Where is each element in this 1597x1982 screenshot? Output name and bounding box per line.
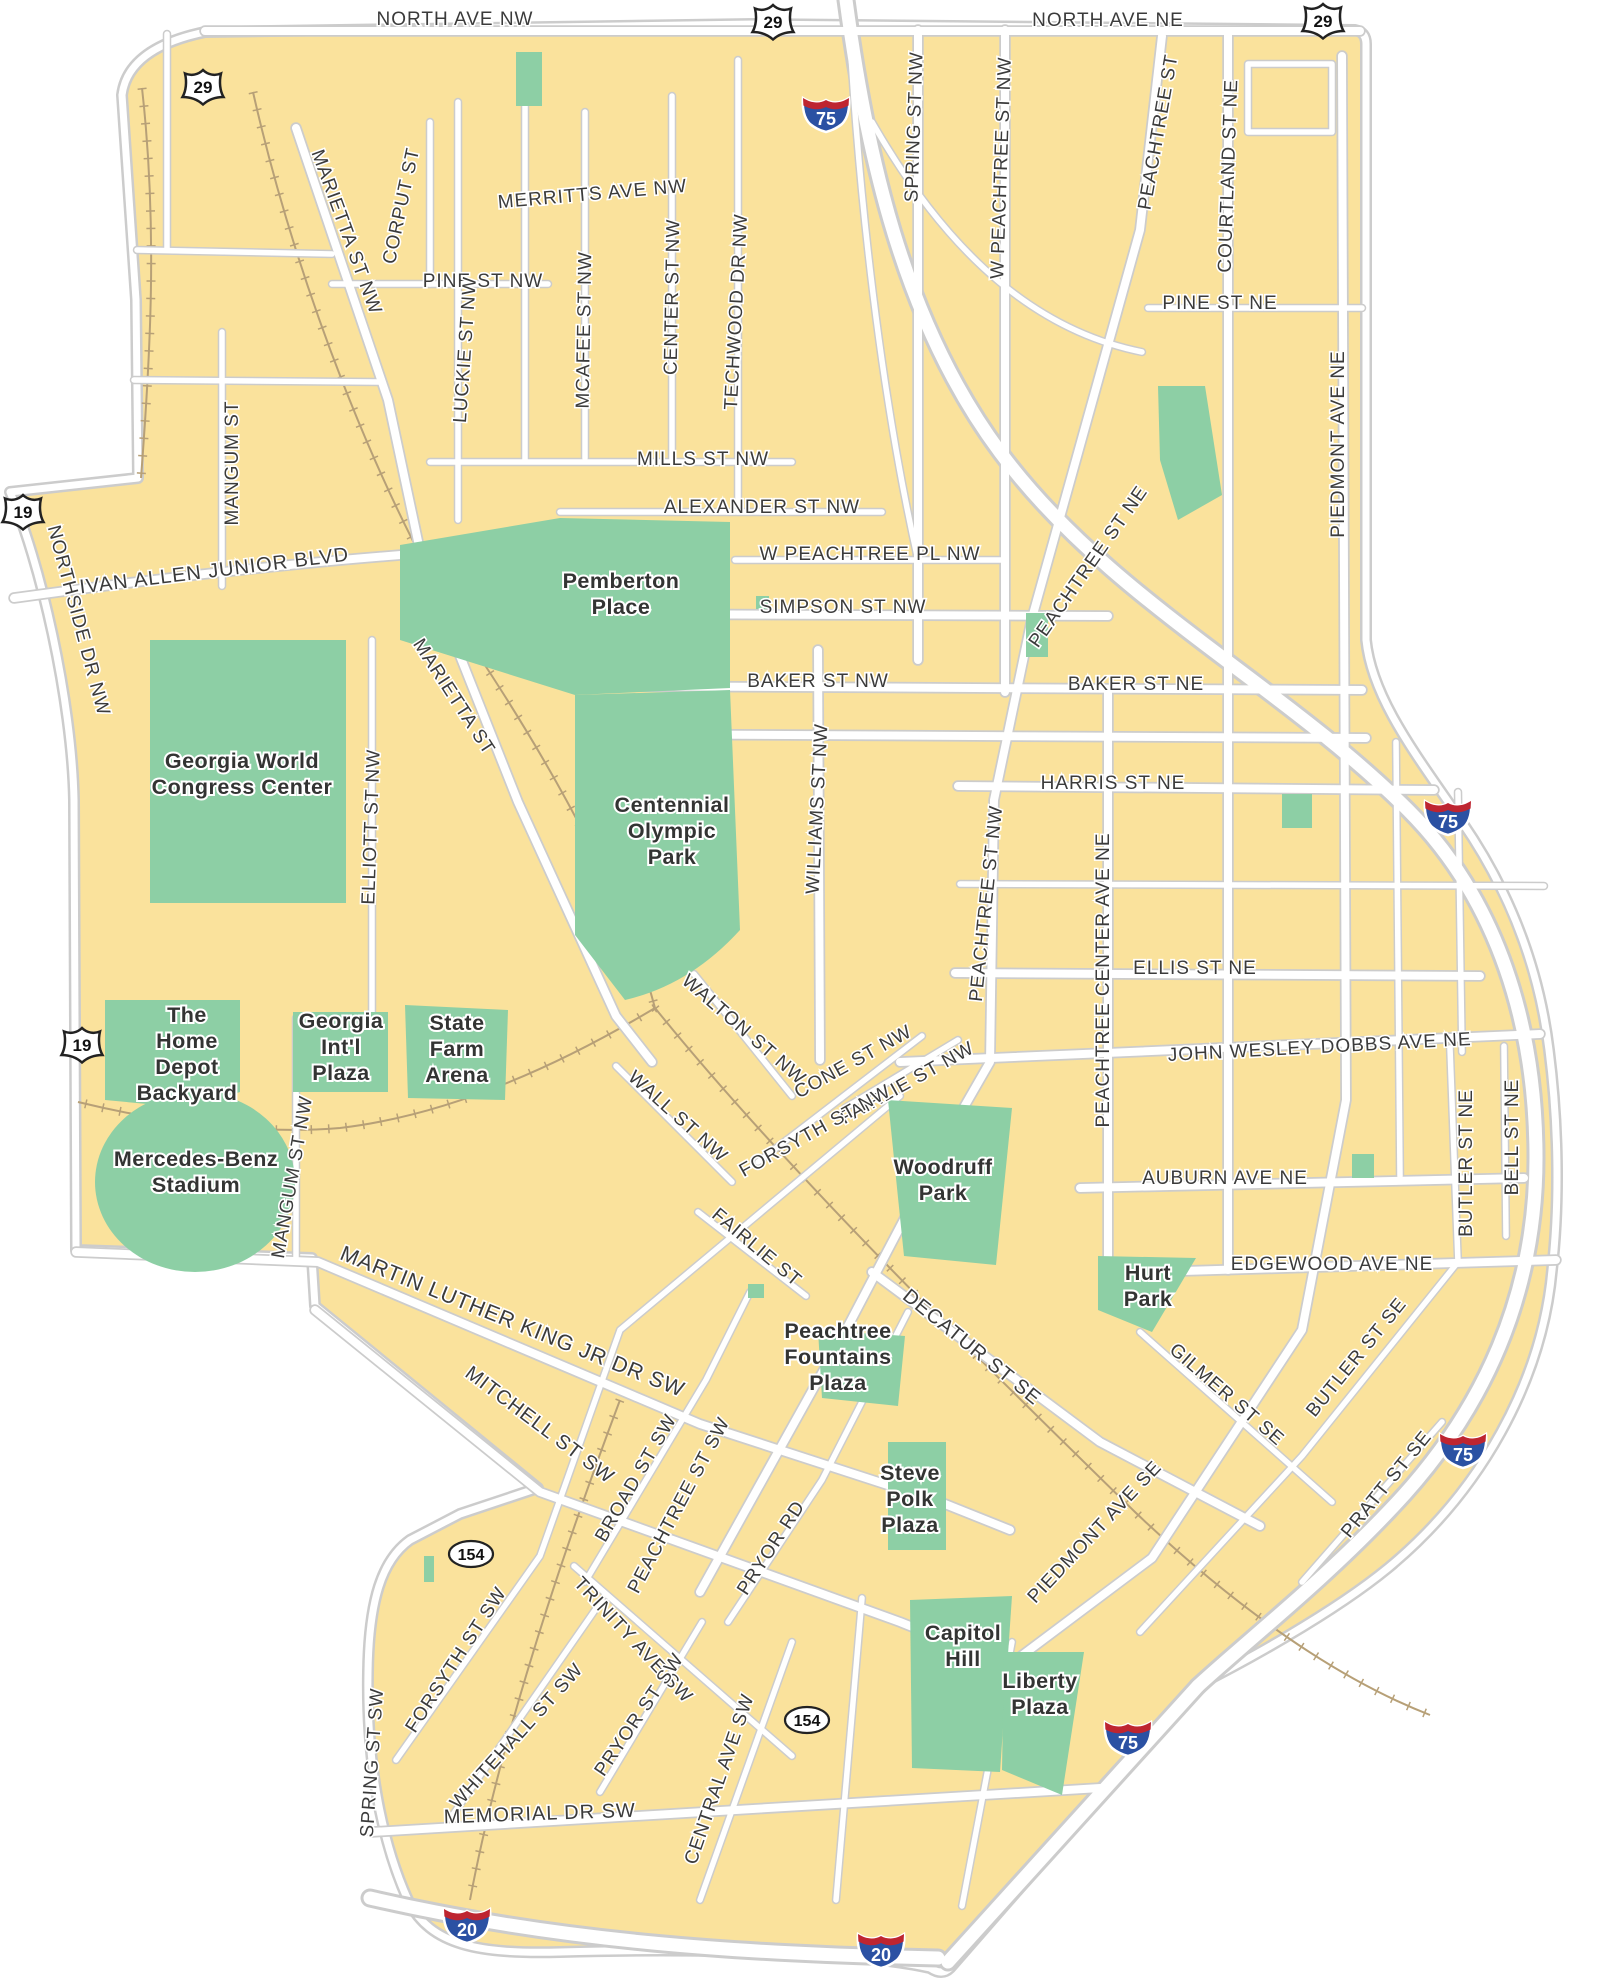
svg-text:19: 19 [14,503,33,522]
street-label: PINE ST NE [1162,293,1277,314]
svg-text:29: 29 [194,78,213,97]
street-label: CENTER ST NW [661,219,685,376]
street-label: PIEDMONT AVE NE [1328,350,1349,537]
land-layer [10,24,1557,1972]
street-label: PEACHTREE CENTER AVE NE [1093,832,1114,1127]
park-small-1 [516,52,542,106]
road [134,380,378,382]
park-small-7 [424,1556,434,1582]
street-label: PINE ST NW [423,271,544,292]
city-boundary [10,24,1557,1972]
street-label: SIMPSON ST NW [760,597,927,618]
svg-text:75: 75 [1453,1445,1473,1465]
svg-text:20: 20 [871,1945,891,1965]
map-canvas[interactable]: NORTH AVE NWNORTH AVE NEMERRITTS AVE NWP… [0,0,1597,1982]
park-small-5 [748,1284,764,1298]
street-label: AUBURN AVE NE [1142,1168,1308,1189]
street-label: ELLIS ST NE [1133,958,1257,979]
svg-text:29: 29 [764,13,783,32]
street-label: MILLS ST NW [637,449,769,470]
street-label: W PEACHTREE PL NW [759,544,980,565]
park-small-3 [1282,794,1312,828]
street-label: BAKER ST NW [747,671,889,692]
street-label: NORTH AVE NW [377,9,534,30]
street-label: EDGEWOOD AVE NE [1231,1254,1434,1275]
street-label: ALEXANDER ST NW [664,497,860,518]
svg-text:75: 75 [816,109,836,129]
road [960,884,1544,886]
state-route-shield-icon: 154 [785,1707,829,1733]
state-route-shield-icon: 154 [449,1541,493,1567]
park-label: StevePolkPlaza [880,1461,940,1537]
park-small-6 [1352,1154,1374,1178]
svg-text:19: 19 [73,1036,92,1055]
svg-text:154: 154 [794,1713,821,1730]
svg-text:75: 75 [1438,812,1458,832]
street-label: HARRIS ST NE [1041,773,1186,794]
street-label: BUTLER ST NE [1456,1089,1477,1237]
road [958,786,1434,790]
svg-text:75: 75 [1118,1733,1138,1753]
street-label: MCAFEE ST NW [573,251,597,409]
svg-text:154: 154 [458,1547,485,1564]
street-label: BAKER ST NE [1068,674,1204,695]
street-label: BELL ST NE [1502,1079,1523,1196]
svg-text:29: 29 [1314,12,1333,31]
atlanta-downtown-map[interactable]: NORTH AVE NWNORTH AVE NEMERRITTS AVE NWP… [0,0,1597,1982]
park-label: StateFarmArena [425,1011,489,1087]
svg-text:20: 20 [457,1920,477,1940]
street-label: NORTH AVE NE [1032,10,1184,31]
street-label: MANGUM ST [222,400,243,525]
